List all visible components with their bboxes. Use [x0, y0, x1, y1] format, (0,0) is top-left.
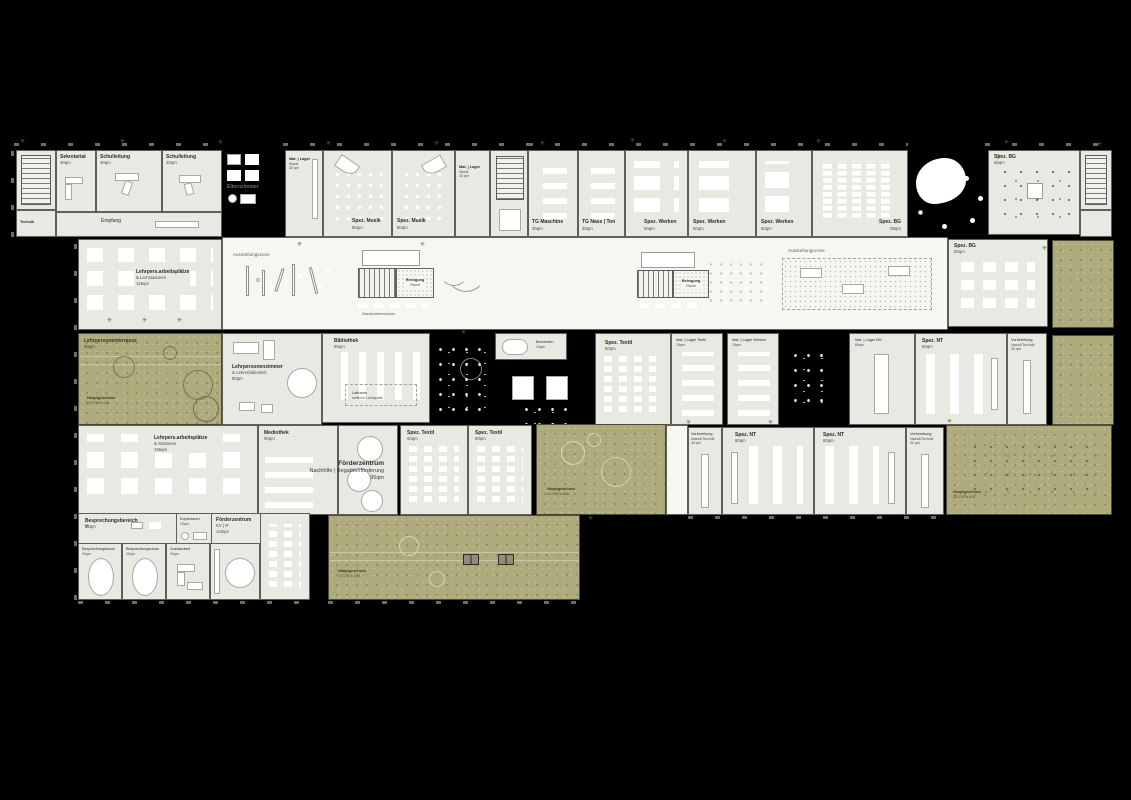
display-panel: [292, 264, 295, 296]
furniture-benches: [640, 303, 704, 308]
room-stairwell-west: [16, 150, 56, 210]
label-sozialarbeit: Sozialarbeit 20qm: [170, 547, 190, 556]
furniture-cabinet: [888, 452, 895, 504]
furniture-cabinet: [731, 452, 738, 504]
room-mat-lager-bg: Mat. | Lager BG 60qm: [849, 333, 915, 425]
room-area-label: 60qm: [855, 343, 882, 347]
plant-icon: ✳: [768, 420, 773, 426]
pond-shape: [916, 158, 966, 204]
room-sekretariat: Sekretariat 40qm: [56, 150, 96, 212]
stairs-icon: [1085, 155, 1107, 205]
stairs-icon: [21, 155, 51, 205]
label-spez-nt-80-b: Spez. NT 80qm: [823, 432, 844, 444]
room-area-label: 195qm: [154, 447, 207, 452]
room-area-label: 65qm: [994, 160, 1016, 165]
label-vorb-nt-30-b: Vorbereitung Natur&Technik 30 qm: [910, 432, 933, 446]
furniture-oval-table: [88, 558, 114, 596]
label-foerderzentrum-kv: Förderzentrum KV | IF 140qm: [216, 517, 251, 534]
room-area-label: 20qm: [126, 552, 159, 556]
room-area-label: 60qm: [605, 346, 632, 351]
label-mat-lager-werken: Mat. | Lager Werken 15qm: [732, 338, 766, 347]
room-spez-bg-65: Spez. BG 65qm: [988, 150, 1080, 235]
tree-icon: [429, 571, 445, 587]
label-sekretariat: Sekretariat 40qm: [60, 154, 86, 166]
room-area-label: 40qm: [100, 160, 130, 165]
furniture-table: [800, 268, 822, 278]
level-sub-label: 24.178 m ü.M.: [87, 401, 115, 405]
room-besprechungsraum-a: Besprechungsraum 20qm: [78, 543, 122, 600]
room-reinigung-1: Reinigung Raum: [396, 268, 434, 298]
pausenplatz: Hauptgeschoss 24.178 m ü.M.: [328, 515, 580, 600]
room-service-east: [1080, 210, 1112, 237]
room-area-label: 40 qm: [691, 441, 714, 445]
room-sub-label: Nachhilfe | Begabtenförderung: [292, 468, 384, 475]
room-foerder-tische: [260, 513, 310, 600]
furniture-cabinet: [214, 549, 220, 594]
furniture-oval-table: [132, 558, 158, 596]
furniture-table: [228, 194, 237, 203]
plant-icon: ✳: [120, 139, 125, 145]
terrace-southeast: Hauptgeschoss 24.178 m ü.M.: [946, 425, 1112, 515]
furniture-elevator: [499, 209, 521, 231]
kiln-icon: [502, 339, 528, 355]
corridor-east: [666, 425, 688, 515]
furniture-lab-benches: [749, 446, 803, 504]
room-area-label: 60qm: [693, 226, 725, 231]
furniture-round-table: [357, 436, 383, 462]
room-brennofen: Brennofen 15qm: [495, 333, 567, 360]
room-area-label: 80qm: [735, 438, 756, 443]
room-area-label: 30 qm: [1011, 347, 1034, 351]
furniture-desk: [177, 564, 195, 572]
label-vorb-nt-40: Vorbereitung Natur&Technik 40 qm: [691, 432, 714, 446]
furniture-shelves: [682, 352, 714, 416]
furniture-long-table: [874, 354, 889, 414]
label-mat-lager-musik-b: Mat. | Lager Musik 30 qm: [459, 165, 480, 179]
plant-icon: ✳: [177, 318, 182, 324]
furniture-machines: [543, 161, 567, 219]
facade-ticks: [78, 601, 310, 604]
room-name-label: Empfang: [101, 218, 121, 224]
zone-sub-label: seitliche Lichtquelle: [352, 396, 383, 400]
room-sub-label: Raum: [406, 283, 425, 287]
room-area-label: 20qm: [166, 160, 196, 165]
level-sub-label: 24.178 m ü.M.: [338, 574, 366, 578]
furniture-worktables: [765, 161, 803, 220]
room-vorb-nt-40: Vorbereitung Natur&Technik 40 qm: [688, 427, 722, 515]
label-lehrpers-125: Lehrpers.arbeitsplätze & Lernstationen 1…: [135, 268, 190, 287]
furniture-platform: [1027, 183, 1043, 199]
furniture-shelf: [240, 194, 256, 204]
plant-icon: ✳: [1042, 246, 1047, 252]
plant-icon: ✳: [540, 141, 545, 147]
label-kopierraum: Kopierraum 10qm: [180, 517, 200, 526]
room-lehrpersonenzimmer: Lehrpersonenzimmer & Lehrerbibliothek 80…: [222, 333, 322, 425]
stool-cluster: [706, 260, 766, 302]
plant-icon: ✳: [142, 318, 147, 324]
room-spez-nt-80-b: Spez. NT 80qm: [814, 427, 906, 515]
facade-ticks: [528, 143, 908, 146]
room-spez-textil-a: Spez. Textil 60qm: [595, 333, 671, 425]
room-area-label: 60qm: [922, 344, 943, 349]
room-schulleitung-40: Schulleitung 40qm: [96, 150, 162, 212]
label-besprechungsraum-a: Besprechungsraum 20qm: [82, 547, 115, 556]
furniture-cabinet: [921, 454, 929, 508]
label-spez-textil-c: Spez. Textil 60qm: [475, 430, 502, 442]
furniture-round-table: [361, 490, 383, 512]
room-area-label: 60qm: [644, 226, 676, 231]
path-line: [330, 560, 579, 561]
label-spez-nt-60: Spez. NT 60qm: [922, 338, 943, 350]
furniture-tables: [591, 161, 615, 219]
tree-icon: [399, 536, 419, 556]
tree-icon: [163, 346, 177, 360]
room-name-label: Förderzentrum: [292, 460, 384, 468]
label-mat-lager-textil: Mat. | Lager Textil 15qm: [676, 338, 706, 347]
plant-icon: ✳: [107, 318, 112, 324]
room-area-label: 90qm: [264, 436, 289, 441]
luftraum-zone: Luftraum seitliche Lichtquelle: [345, 384, 417, 406]
label-schulleitung-40: Schulleitung 40qm: [100, 154, 130, 166]
room-name-label: Spez. Musik: [397, 218, 426, 224]
label-hauptgeschoss-hof: Hauptgeschoss 24.178 m ü.M.: [547, 487, 575, 496]
room-area-label: 30qm: [582, 226, 615, 231]
room-mat-lager-musik-b: Mat. | Lager Musik 30 qm: [455, 150, 490, 237]
furniture-round-table: [225, 558, 255, 588]
room-empfang: Empfang: [56, 212, 222, 237]
label-reinigung-1: Reinigung Raum: [405, 278, 426, 287]
zone-name-label: Ausstellungszone: [233, 252, 270, 257]
room-area-label: 140qm: [216, 529, 251, 534]
facade-ticks: [14, 143, 222, 146]
room-area-label: 80qm: [352, 225, 381, 230]
plant-icon: ✳: [20, 139, 25, 145]
room-spez-nt-80-a: Spez. NT 80qm: [722, 427, 814, 515]
furniture-pod-table: [546, 376, 568, 400]
courtyard-east: [779, 332, 849, 425]
room-spez-musik-a: Spez. Musik 80qm: [323, 150, 392, 237]
stone-scatter: [789, 348, 833, 408]
terrace-east-lower: [1052, 335, 1114, 425]
label-garderoben: Garderobennischen: [362, 312, 395, 317]
label-spez-musik-b: Spez. Musik 80qm: [397, 218, 426, 230]
room-name-label: Spez. BG: [879, 219, 901, 225]
label-spez-nt-80-a: Spez. NT 80qm: [735, 432, 756, 444]
courtyard-pond: [908, 146, 985, 237]
room-area-label: 60qm: [407, 436, 434, 441]
room-foerder-rundtisch: [210, 543, 260, 600]
furniture-desk: [187, 582, 203, 590]
label-elternzimmer: Elternzimmer: [227, 184, 259, 190]
room-spez-bg-60: Spez. BG 60qm: [948, 239, 1048, 327]
path-line: [80, 356, 221, 357]
room-vorb-nt-30-a: Vorbereitung Natur&Technik 30 qm: [1007, 333, 1047, 425]
path-line: [80, 364, 221, 365]
label-mat-lager-musik-a: Mat. | Lager Musik 30 qm: [289, 157, 310, 171]
furniture-lab-benches: [926, 354, 984, 414]
stairs-icon: [637, 270, 673, 298]
room-name-label: Spez. Musik: [352, 218, 381, 224]
room-tg-nass-ton: TG Nass | Ton 30qm: [578, 150, 625, 237]
room-spez-bg-80: Spez. BG 80qm: [812, 150, 908, 237]
label-brennofen: Brennofen 15qm: [536, 340, 554, 349]
label-lehrpersonenzimmer: Lehrpersonenzimmer & Lehrerbibliothek 80…: [232, 364, 283, 381]
stairs-icon: [358, 268, 396, 298]
label-empfang: Empfang: [101, 218, 121, 224]
facade-ticks: [283, 143, 530, 146]
furniture-sewing-tables: [409, 446, 459, 506]
room-mat-lager-textil: Mat. | Lager Textil 15qm: [671, 333, 723, 425]
furniture-desks: [823, 161, 893, 220]
label-lehrpers-195: Lehrpers.arbeitsplätze & Stationen 195qm: [153, 434, 208, 453]
plant-icon: ✳: [297, 242, 302, 248]
room-area-label: 65qm: [85, 524, 138, 529]
room-stairwell-east: [1080, 150, 1112, 210]
room-stairwell-musik: [490, 150, 528, 237]
plant-icon: ✳: [1097, 142, 1102, 148]
room-area-label: 15qm: [536, 345, 554, 349]
furniture-sewing-tables: [604, 356, 656, 416]
room-area-label: 95qm: [334, 344, 358, 349]
furniture-desk: [184, 182, 195, 196]
room-area-label: 30 qm: [459, 174, 480, 178]
room-name-label: TG Nass | Ton: [582, 219, 615, 225]
plant-icon: ✳: [84, 524, 89, 530]
level-sub-label: 24.178 m ü.M.: [953, 495, 981, 499]
furniture-table: [181, 532, 189, 540]
facade-ticks: [328, 601, 580, 604]
room-area-label: 40qm: [60, 160, 86, 165]
furniture-desk: [65, 177, 83, 184]
facade-ticks: [11, 150, 14, 237]
room-lehrpers-125: Lehrpers.arbeitsplätze & Lernstationen 1…: [78, 239, 222, 330]
label-besprechungsbereich: Besprechungsbereich 65qm: [85, 518, 138, 530]
display-panel: [246, 266, 249, 296]
furniture-benches: [358, 303, 428, 308]
plant-icon: ✳: [420, 242, 425, 248]
plant-icon: ✳: [434, 141, 439, 147]
label-bibliothek: Bibliothek 95qm: [334, 338, 358, 350]
terrace-east-upper: [1052, 240, 1114, 328]
courtyard-green: Hauptgeschoss 24.178 m ü.M.: [536, 424, 666, 515]
path-line: [330, 552, 579, 553]
room-area-label: 80qm: [879, 226, 901, 231]
furniture-tables: [269, 524, 301, 591]
label-vorb-nt-30-a: Vorbereitung Natur&Technik 30 qm: [1011, 338, 1034, 352]
stone-icon: [918, 210, 923, 215]
plant-icon: ✳: [1004, 140, 1009, 146]
furniture-worktables: [699, 161, 745, 220]
label-hauptgeschoss-terrasse: Hauptgeschoss 24.178 m ü.M.: [87, 396, 115, 405]
room-vorb-nt-30-b: Vorbereitung Natur&Technik 30 qm: [906, 427, 944, 515]
plant-icon: ✳: [816, 139, 821, 145]
room-spez-textil-c: Spez. Textil 60qm: [468, 425, 532, 515]
room-name-label: Spez. Werken: [693, 219, 725, 225]
floor-plan: Technik Sekretariat 40qm Schulleitung 40…: [0, 0, 1131, 800]
room-area-label: 20qm: [82, 552, 115, 556]
table-tennis-icon: [498, 554, 514, 565]
label-foerderzentrum-95: Förderzentrum Nachhilfe | Begabtenförder…: [292, 460, 384, 482]
furniture-cabinet: [991, 358, 998, 410]
room-area-label: 90qm: [84, 344, 137, 349]
room-area-label: 125qm: [136, 281, 189, 286]
tree-icon: [601, 457, 631, 487]
label-ausstellungszone-west: Ausstellungszone: [233, 252, 270, 257]
label-tg-maschine: TG Maschine 30qm: [532, 219, 563, 231]
furniture-shelves: [738, 352, 770, 416]
room-area-label: 20qm: [170, 552, 190, 556]
facade-ticks: [74, 239, 77, 600]
furniture-shelf: [312, 159, 318, 219]
furniture-shelf: [227, 154, 241, 165]
label-mat-lager-bg: Mat. | Lager BG 60qm: [855, 338, 882, 347]
plant-icon: ✳: [588, 516, 593, 522]
room-schulleitung-20: Schulleitung 20qm: [162, 150, 222, 212]
furniture-desk: [121, 180, 133, 196]
furniture-copier: [193, 532, 207, 540]
label-schulleitung-20: Schulleitung 20qm: [166, 154, 196, 166]
stone-scatter: [520, 402, 568, 424]
label-spez-werken-3: Spez. Werken 60qm: [761, 219, 793, 231]
label-spez-textil-b: Spez. Textil 60qm: [407, 430, 434, 442]
room-spez-werken-2: Spez. Werken 60qm: [688, 150, 756, 237]
room-area-label: 30qm: [532, 226, 563, 231]
room-reinigung-2: Reinigung Raum: [673, 270, 709, 298]
room-area-label: 80qm: [823, 438, 844, 443]
furniture-desk: [65, 184, 72, 200]
room-area-label: 60qm: [475, 436, 502, 441]
room-area-label: 95qm: [292, 475, 384, 482]
facade-ticks: [688, 516, 944, 519]
furniture-round-table: [287, 368, 317, 398]
room-name-label: Technik: [20, 220, 34, 225]
terrace-lehrpersonen: Lehrpersonenterrasse 90qm Hauptgeschoss …: [78, 333, 222, 425]
furniture-table: [842, 284, 864, 294]
room-area-label: 10qm: [180, 522, 200, 526]
plant-icon: ✳: [686, 420, 691, 426]
label-technik: Technik: [20, 220, 34, 225]
zone-name-label: Garderobennischen: [362, 312, 395, 317]
arc-decoration: [446, 252, 486, 292]
room-lehrpers-195: Lehrpers.arbeitsplätze & Stationen 195qm: [78, 425, 258, 515]
plant-icon: ✳: [722, 139, 727, 145]
stairs-icon: [496, 156, 524, 200]
furniture-cabinet: [1023, 360, 1031, 414]
tree-icon: [561, 441, 585, 465]
stage-outline: [362, 250, 420, 266]
room-area-label: 60qm: [761, 226, 793, 231]
plant-icon: ✳: [218, 140, 223, 146]
room-sub-label: Raum: [682, 284, 701, 288]
label-ausstellungszone-east: Ausstellungszone: [788, 248, 825, 253]
room-sozialarbeit: Sozialarbeit 20qm: [166, 543, 210, 600]
label-besprechungsraum-b: Besprechungsraum 20qm: [126, 547, 159, 556]
furniture-table: [888, 266, 910, 276]
furniture-worktables: [634, 161, 679, 220]
label-hauptgeschoss-pausenplatz: Hauptgeschoss 24.178 m ü.M.: [338, 569, 366, 578]
label-tg-nass-ton: TG Nass | Ton 30qm: [582, 219, 615, 231]
room-area-label: 60qm: [954, 249, 976, 254]
room-technik: Technik: [16, 210, 56, 237]
table-tennis-icon: [463, 554, 479, 565]
label-spez-werken-1: Spez. Werken 60qm: [644, 219, 676, 231]
plant-icon: ✳: [630, 138, 635, 144]
tree-icon: [460, 358, 482, 380]
label-spez-textil-a: Spez. Textil 60qm: [605, 340, 632, 352]
plant-icon: ✳: [996, 154, 1001, 160]
level-sub-label: 24.178 m ü.M.: [547, 492, 575, 496]
room-besprechungsraum-b: Besprechungsraum 20qm: [122, 543, 166, 600]
room-mat-lager-musik-a: Mat. | Lager Musik 30 qm: [285, 150, 323, 237]
furniture-cabinet: [701, 454, 709, 508]
room-area-label: 30 qm: [910, 441, 933, 445]
zone-elternzimmer: Elternzimmer: [222, 146, 284, 237]
furniture-desk: [177, 572, 185, 586]
plant-icon: ✳: [326, 141, 331, 147]
plant-scatter: [967, 440, 1097, 496]
room-spez-werken-3: Spez. Werken 60qm: [756, 150, 812, 237]
room-bibliothek: Bibliothek 95qm Luftraum seitliche Licht…: [322, 333, 430, 423]
label-luftraum: Luftraum seitliche Lichtquelle: [352, 391, 383, 400]
zone-name-label: Ausstellungszone: [788, 248, 825, 253]
label-reinigung-2: Reinigung Raum: [681, 279, 702, 288]
tree-icon: [587, 433, 601, 447]
display-panel: [262, 270, 265, 296]
room-mat-lager-werken: Mat. | Lager Werken 15qm: [727, 333, 779, 425]
label-mediothek: Mediothek 90qm: [264, 430, 289, 442]
furniture-table: [239, 402, 255, 411]
room-spez-musik-b: Spez. Musik 80qm: [392, 150, 455, 237]
furniture-desks: [961, 258, 1035, 316]
label-spez-musik-a: Spez. Musik 80qm: [352, 218, 381, 230]
stone-scatter: [434, 342, 489, 417]
furniture-sofa: [233, 342, 259, 354]
label-spez-werken-2: Spez. Werken 60qm: [693, 219, 725, 231]
room-spez-nt-60: Spez. NT 60qm: [915, 333, 1007, 425]
plant-icon: ✳: [461, 330, 466, 336]
furniture-sofa: [263, 340, 275, 360]
room-kopierraum: Kopierraum 10qm: [176, 513, 212, 545]
furniture-lab-benches: [825, 446, 879, 504]
room-area-label: 30 qm: [289, 166, 310, 170]
room-name-label: Spez. Werken: [644, 219, 676, 225]
furniture-pod-table: [512, 376, 534, 400]
room-name-label: Elternzimmer: [227, 184, 259, 190]
furniture-table: [261, 404, 273, 413]
label-hauptgeschoss-southeast: Hauptgeschoss 24.178 m ü.M.: [953, 490, 981, 499]
furniture-round-table: [193, 396, 219, 422]
stage-outline: [641, 252, 695, 268]
label-spez-bg-60: Spez. BG 60qm: [954, 243, 976, 255]
room-area-label: 15qm: [676, 343, 706, 347]
room-name-label: Spez. Werken: [761, 219, 793, 225]
room-area-label: 80qm: [397, 225, 426, 230]
room-area-label: 15qm: [732, 343, 766, 347]
furniture-counter: [155, 221, 199, 228]
label-lehrterrasse: Lehrpersonenterrasse 90qm: [84, 338, 137, 350]
tree-icon: [113, 356, 135, 378]
room-name-label: TG Maschine: [532, 219, 563, 225]
room-spez-werken-1: Spez. Werken 60qm: [625, 150, 688, 237]
room-spez-textil-b: Spez. Textil 60qm: [400, 425, 468, 515]
label-spez-bg-80: Spez. BG 80qm: [879, 219, 901, 231]
room-area-label: 80qm: [232, 376, 283, 381]
furniture-sewing-tables: [477, 446, 523, 506]
plant-icon: ✳: [947, 419, 952, 425]
room-tg-maschine: TG Maschine 30qm: [528, 150, 578, 237]
stool-icon: [256, 278, 260, 282]
